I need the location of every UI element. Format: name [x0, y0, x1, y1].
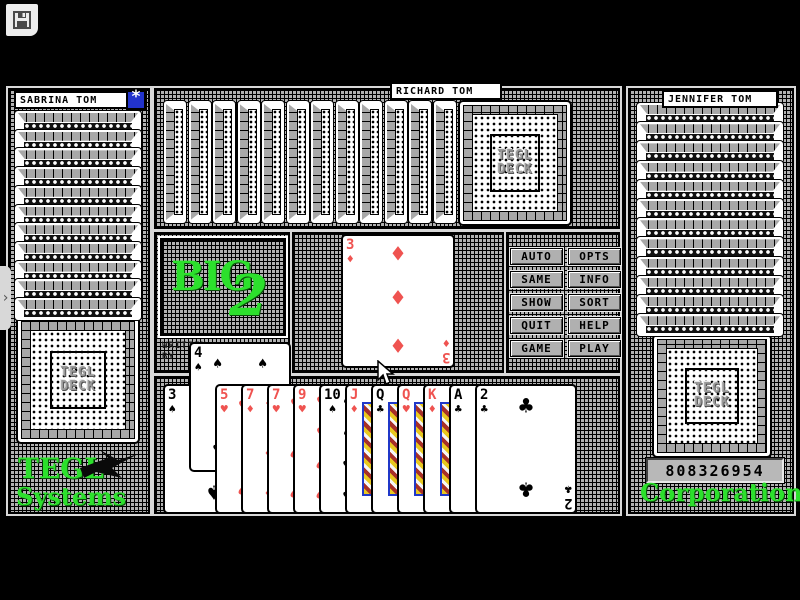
card-pip: ♠ [213, 357, 222, 372]
top-player-deck-card: TEGL DECK [458, 100, 572, 226]
face-down-card-edge [408, 100, 432, 224]
deck-label: DECK [497, 163, 532, 177]
dealer-star-button[interactable]: * [126, 90, 146, 110]
face-down-card-edge [188, 100, 212, 224]
card-pip: ♦ [391, 286, 405, 310]
face-down-card-edge [163, 100, 187, 224]
face-down-card-edge [212, 100, 236, 224]
card-pip: ♠ [258, 357, 267, 372]
face-down-card-edge [359, 100, 383, 224]
face-down-card-edge [433, 100, 457, 224]
face-down-card-edge [384, 100, 408, 224]
card-pip: ♦ [391, 333, 405, 357]
deck-label: TEGL [60, 366, 95, 380]
game-screen: SABRINA TOM * RICHARD TOM JENNIFER TOM T… [0, 0, 800, 600]
right-player-deck-card: TEGL DECK [652, 334, 772, 458]
sort-button[interactable]: SORT [568, 294, 621, 311]
face-down-card-edge [237, 100, 261, 224]
deck-inner: TEGL DECK [50, 351, 106, 410]
deck-label: DECK [694, 396, 729, 410]
help-button[interactable]: HELP [568, 317, 621, 334]
face-down-card-edge [261, 100, 285, 224]
deck-pattern: TEGL DECK [472, 114, 558, 212]
chevron-right-icon: › [1, 290, 9, 306]
corporation-logo-text: Corporation [640, 478, 800, 507]
face-down-card-edge [636, 313, 784, 337]
deck-pattern: TEGL DECK [666, 348, 758, 444]
card-corner: 10♠ [324, 388, 341, 415]
big2-logo-box: BIG 2 [160, 238, 286, 336]
player-name-top: RICHARD TOM [390, 82, 502, 100]
face-down-card-edge [310, 100, 334, 224]
deck-inner: TEGL DECK [490, 134, 540, 192]
show-button[interactable]: SHOW [510, 294, 563, 311]
card-corner: K♦ [428, 388, 436, 415]
big2-logo-numeral: 2 [229, 263, 268, 329]
quit-button[interactable]: QUIT [510, 317, 563, 334]
opts-button[interactable]: OPTS [568, 248, 621, 265]
card-corner: 3♠ [168, 388, 176, 415]
card-corner: 7♥ [272, 388, 280, 415]
save-button[interactable] [6, 4, 38, 36]
card-corner: A♣ [454, 388, 462, 415]
side-panel-tab[interactable]: › [0, 266, 11, 330]
tegl-bird-logo-icon [78, 448, 140, 484]
card-corner-rotated: 2♣ [564, 483, 572, 510]
card-corner: 3♦ [346, 238, 354, 265]
hand-card-2-club[interactable]: 2♣ 2♣♣♣ [475, 384, 577, 514]
card-pip: ♣ [519, 394, 533, 418]
card-corner: Q♣ [376, 388, 384, 415]
deck-inner: TEGL DECK [685, 368, 739, 424]
card-corner: 5♥ [220, 388, 228, 415]
face-down-card-edge [14, 297, 142, 321]
deck-label: TEGL [694, 382, 729, 396]
card-corner-rotated: 3♦ [442, 337, 450, 364]
deck-label: TEGL [497, 149, 532, 163]
info-button[interactable]: INFO [568, 271, 621, 288]
play-button[interactable]: PLAY [568, 340, 621, 357]
card-pip: ♣ [519, 477, 533, 501]
tegl-systems-logo-text: Systems [16, 482, 126, 511]
player-name-right: JENNIFER TOM [662, 90, 778, 108]
card-corner: 7♦ [246, 388, 254, 415]
card-corner: J♦ [350, 388, 358, 415]
left-player-deck-card: TEGL DECK [16, 316, 140, 444]
card-corner: 2♣ [480, 388, 488, 415]
player-name-left: SABRINA TOM [14, 91, 132, 109]
card-corner: 4♠ [194, 346, 202, 373]
deck-label: DECK [60, 380, 95, 394]
same-button[interactable]: SAME [510, 271, 563, 288]
floppy-disk-icon [12, 10, 32, 30]
face-down-card-edge [286, 100, 310, 224]
game-button[interactable]: GAME [510, 340, 563, 357]
action-button-grid: AUTOOPTSSAMEINFOSHOWSORTQUITHELPGAMEPLAY [510, 248, 621, 357]
deck-pattern: TEGL DECK [30, 330, 126, 430]
card-corner: Q♥ [402, 388, 410, 415]
face-down-card-edge [335, 100, 359, 224]
auto-button[interactable]: AUTO [510, 248, 563, 265]
card-pip: ♦ [391, 242, 405, 266]
played-card: 3♦ 3♦♦♦♦ [341, 234, 455, 368]
card-corner: 9♥ [298, 388, 306, 415]
